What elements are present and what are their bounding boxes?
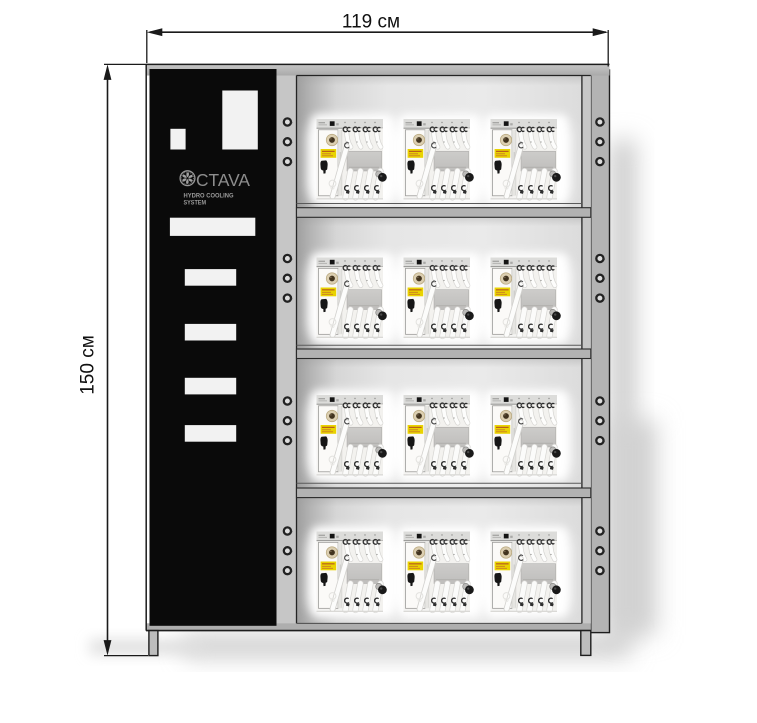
svg-text:CTAVA: CTAVA [196,170,250,190]
svg-text:SYSTEM: SYSTEM [184,201,207,207]
svg-text:150 см: 150 см [78,335,99,395]
svg-text:119 см: 119 см [342,12,400,33]
svg-text:HYDRO COOLING: HYDRO COOLING [184,193,234,199]
